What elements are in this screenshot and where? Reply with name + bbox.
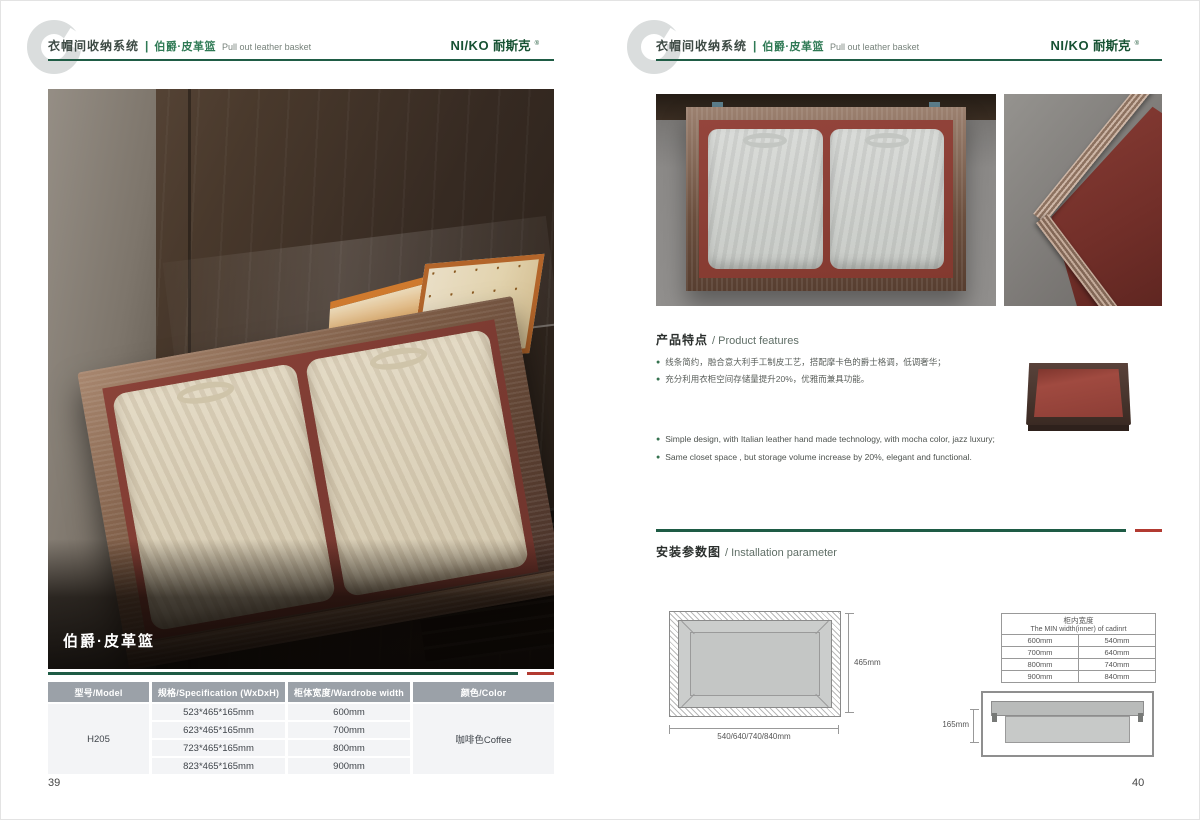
feature-text: 线条简约，融合意大利手工制皮工艺，搭配摩卡色的爵士格调，低调奢华；	[665, 357, 946, 368]
min-width-title-en: The MIN width(inner) of cadinrt	[1002, 626, 1155, 633]
basket-body	[1005, 716, 1130, 743]
width-dimension-label: 540/640/740/840mm	[669, 732, 839, 741]
min-width-table-header: 柜内宽度 The MIN width(inner) of cadinrt	[1002, 614, 1156, 635]
installation-title-en: / Installation parameter	[725, 547, 837, 559]
min-width-table: 柜内宽度 The MIN width(inner) of cadinrt 600…	[1001, 613, 1156, 683]
empty-basket-thumbnail	[1016, 341, 1141, 441]
header-product-name-en: Pull out leather basket	[830, 42, 919, 52]
inner-width-cell: 640mm	[1079, 647, 1156, 659]
bullet-dot-icon: ●	[656, 357, 660, 368]
basket-top-view-photo	[656, 94, 996, 306]
spec-table-model-cell: H205	[48, 704, 149, 774]
brand-logo-cn: 耐斯克	[1093, 35, 1131, 54]
header-underline	[656, 59, 1162, 61]
feature-text: 充分利用衣柜空间存储量提升20%，优雅而兼具功能。	[665, 374, 869, 385]
height-dimension-line	[973, 709, 974, 743]
rail-bracket	[1138, 713, 1143, 722]
basket-red-leather	[699, 120, 953, 278]
table-row: 700mm 640mm	[1002, 647, 1156, 659]
installation-title-cn: 安装参数图	[656, 545, 721, 559]
spec-cell: 623*465*165mm	[152, 722, 285, 738]
width-cell: 600mm	[288, 704, 410, 720]
brand-logo: NI/KO 耐斯克 ®	[1050, 35, 1139, 54]
feature-bullet: ● Same closet space , but storage volume…	[656, 452, 1076, 463]
header-product-name-cn: 伯爵·皮革篮	[154, 38, 216, 54]
page-number: 39	[48, 777, 60, 789]
wardrobe-photo: 伯爵·皮革篮	[48, 89, 554, 669]
basket-red-leather	[1034, 369, 1123, 417]
flag-separator	[656, 529, 1162, 532]
feature-text: Same closet space , but storage volume i…	[665, 452, 972, 463]
flag-separator-red	[1135, 529, 1162, 532]
spec-table-header-width: 柜体宽度/Wardrobe width	[288, 682, 410, 702]
brand-logo-latin: NI/KO	[450, 38, 489, 53]
header-system-title: 衣帽间收纳系统	[656, 37, 747, 54]
features-title-en: / Product features	[712, 335, 799, 347]
feature-bullet: ● Simple design, with Italian leather ha…	[656, 434, 1076, 445]
catalog-page-right: 衣帽间收纳系统 | 伯爵·皮革篮 Pull out leather basket…	[601, 1, 1200, 821]
basket-frame	[686, 107, 966, 291]
spec-cell: 523*465*165mm	[152, 704, 285, 720]
width-cell: 900mm	[288, 758, 410, 774]
bullet-dot-icon: ●	[656, 374, 660, 385]
cabinet-width-cell: 800mm	[1002, 659, 1079, 671]
registered-mark-icon: ®	[1135, 41, 1139, 47]
inner-width-cell: 540mm	[1079, 635, 1156, 647]
sweater	[830, 129, 945, 269]
installation-section-title: 安装参数图/ Installation parameter	[656, 543, 837, 561]
flag-separator-green	[656, 529, 1126, 532]
cabinet-width-cell: 900mm	[1002, 671, 1079, 683]
features-section-title: 产品特点/ Product features	[656, 331, 799, 349]
photo-caption: 伯爵·皮革篮	[63, 630, 155, 651]
feature-bullet: ● 充分利用衣柜空间存储量提升20%，优雅而兼具功能。	[656, 374, 1001, 385]
drawer-rail-bar	[991, 701, 1144, 716]
header-underline	[48, 59, 554, 61]
page-number: 40	[1132, 777, 1144, 789]
feature-bullet: ● 线条简约，融合意大利手工制皮工艺，搭配摩卡色的爵士格调，低调奢华；	[656, 357, 1001, 368]
spec-table-color-cell: 咖啡色Coffee	[413, 704, 554, 774]
basket-corner-detail-photo	[1004, 94, 1162, 306]
cabinet-width-cell: 600mm	[1002, 635, 1079, 647]
brand-logo-cn: 耐斯克	[493, 35, 531, 54]
height-dimension-label: 165mm	[931, 720, 969, 729]
min-width-title-cn: 柜内宽度	[1002, 615, 1155, 626]
flag-separator	[48, 672, 554, 675]
spec-table-header-color: 颜色/Color	[413, 682, 554, 702]
width-cell: 700mm	[288, 722, 410, 738]
spec-table-header-model: 型号/Model	[48, 682, 149, 702]
spec-cell: 823*465*165mm	[152, 758, 285, 774]
header-product-name-cn: 伯爵·皮革篮	[762, 38, 824, 54]
cabinet-width-cell: 700mm	[1002, 647, 1079, 659]
brand-logo-latin: NI/KO	[1050, 38, 1089, 53]
front-view-diagram	[669, 611, 841, 717]
flag-separator-green	[48, 672, 518, 675]
features-title-cn: 产品特点	[656, 333, 708, 347]
height-dimension-label: 465mm	[854, 658, 881, 667]
rail-bracket	[992, 713, 997, 722]
spec-cell: 723*465*165mm	[152, 740, 285, 756]
inner-width-cell: 840mm	[1079, 671, 1156, 683]
header-system-title: 衣帽间收纳系统	[48, 37, 139, 54]
folded-sweaters	[708, 129, 944, 269]
spec-table-header-spec: 规格/Specification (WxDxH)	[152, 682, 285, 702]
table-row: 800mm 740mm	[1002, 659, 1156, 671]
spec-table: 型号/Model 规格/Specification (WxDxH) 柜体宽度/W…	[48, 682, 554, 774]
height-dimension-line	[848, 613, 849, 713]
bullet-dot-icon: ●	[656, 434, 660, 445]
feature-text: Simple design, with Italian leather hand…	[665, 434, 995, 445]
flag-separator-red	[527, 672, 554, 675]
sweater	[708, 129, 823, 269]
table-row: 600mm 540mm	[1002, 635, 1156, 647]
side-view-diagram	[981, 691, 1154, 757]
width-cell: 800mm	[288, 740, 410, 756]
catalog-page-left: 衣帽间收纳系统 | 伯爵·皮革篮 Pull out leather basket…	[1, 1, 601, 821]
width-dimension-line	[669, 728, 839, 729]
header-product-name-en: Pull out leather basket	[222, 42, 311, 52]
bullet-dot-icon: ●	[656, 452, 660, 463]
basket-base	[1028, 425, 1129, 431]
table-row: 900mm 840mm	[1002, 671, 1156, 683]
brand-logo: NI/KO 耐斯克 ®	[450, 35, 539, 54]
header-divider: |	[753, 39, 756, 53]
header-divider: |	[145, 39, 148, 53]
registered-mark-icon: ®	[535, 41, 539, 47]
inner-width-cell: 740mm	[1079, 659, 1156, 671]
diagram-inner-panel	[690, 632, 820, 696]
